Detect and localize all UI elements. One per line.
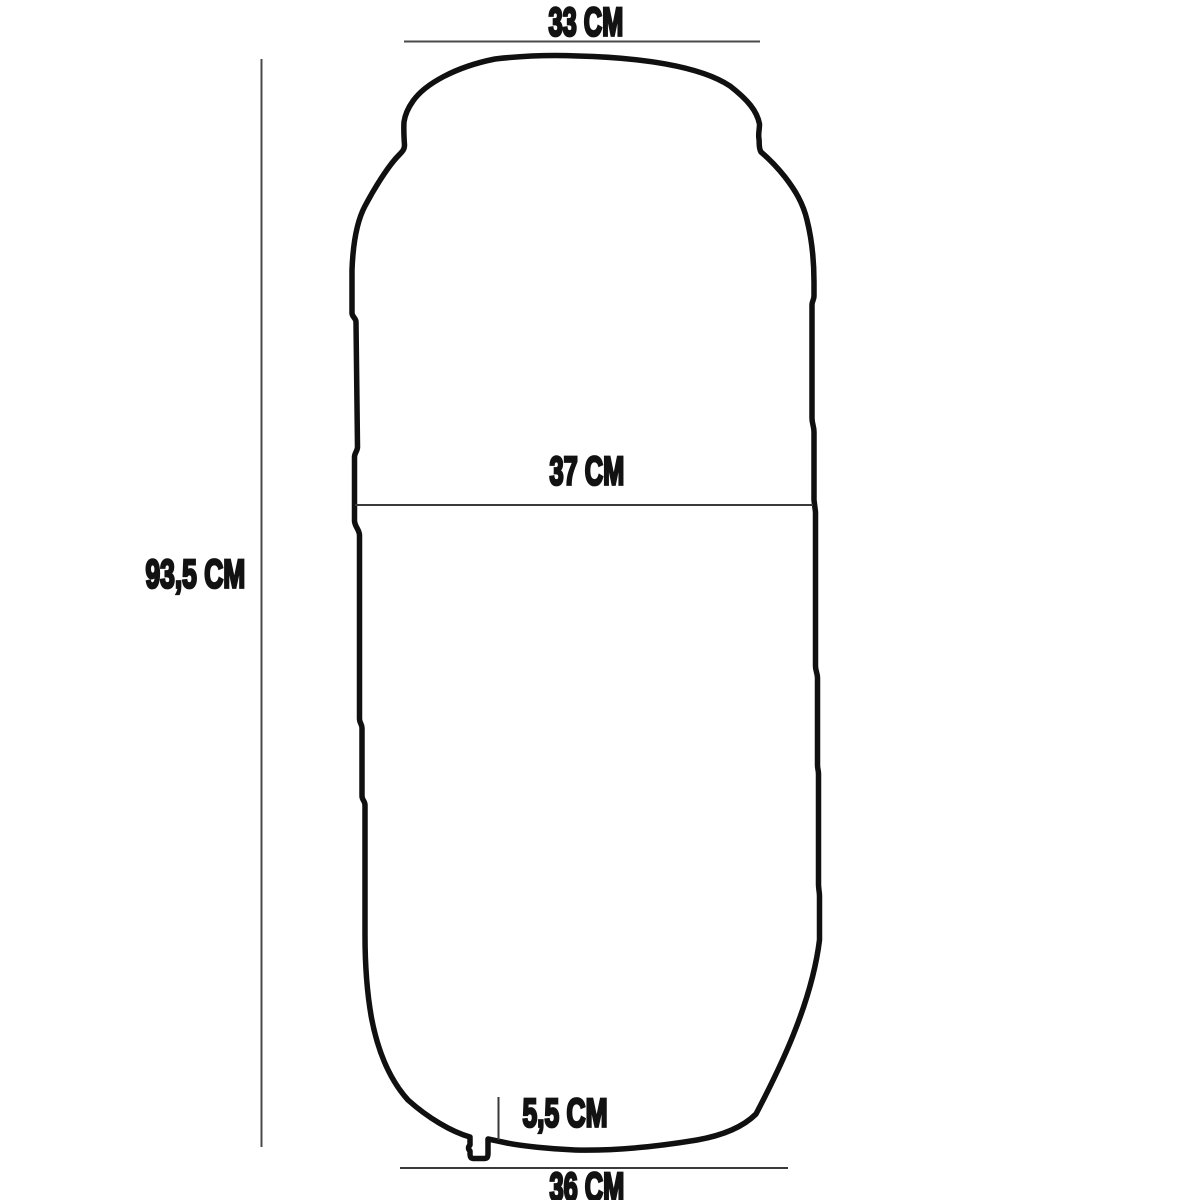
svg-text:33 CM: 33 CM (549, 1, 624, 45)
svg-text:36 CM: 36 CM (550, 1166, 625, 1200)
svg-text:37 CM: 37 CM (550, 450, 625, 494)
svg-text:5,5 CM: 5,5 CM (523, 1091, 608, 1136)
svg-text:93,5 CM: 93,5 CM (146, 552, 246, 597)
